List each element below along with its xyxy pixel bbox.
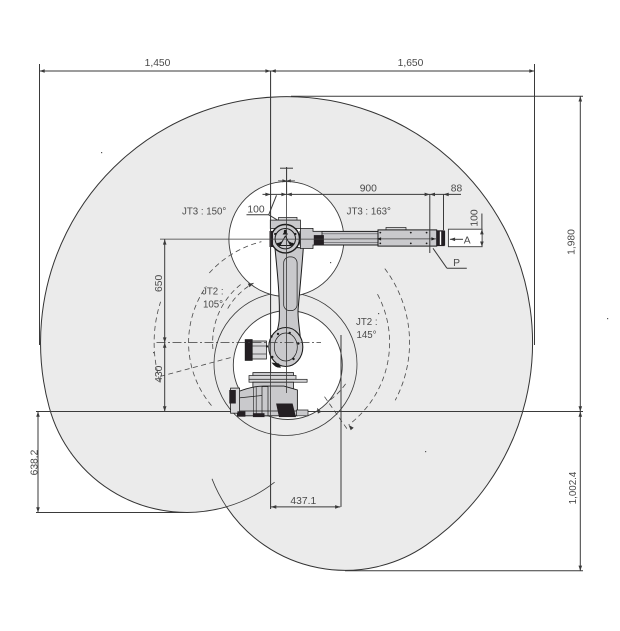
svg-text:A: A <box>464 235 471 246</box>
svg-text:900: 900 <box>360 184 377 195</box>
svg-text:JT2 :: JT2 : <box>202 287 224 298</box>
svg-text:100: 100 <box>470 209 481 226</box>
svg-text:638.2: 638.2 <box>29 449 40 475</box>
svg-text:JT3 : 150°: JT3 : 150° <box>182 207 226 218</box>
svg-text:P: P <box>453 258 460 269</box>
svg-text:JT3 : 163°: JT3 : 163° <box>347 207 391 218</box>
svg-text:JT2 :: JT2 : <box>356 317 378 328</box>
svg-text:145°: 145° <box>357 330 377 341</box>
svg-text:437.1: 437.1 <box>290 496 316 507</box>
svg-text:1,980: 1,980 <box>567 229 578 255</box>
svg-text:1,450: 1,450 <box>145 58 171 69</box>
svg-text:88: 88 <box>451 184 463 195</box>
svg-text:1,650: 1,650 <box>398 58 424 69</box>
svg-text:650: 650 <box>154 275 165 292</box>
svg-text:1,002.4: 1,002.4 <box>568 471 579 504</box>
svg-text:105°: 105° <box>203 300 223 311</box>
svg-text:430: 430 <box>154 365 165 382</box>
svg-text:100: 100 <box>247 204 264 215</box>
